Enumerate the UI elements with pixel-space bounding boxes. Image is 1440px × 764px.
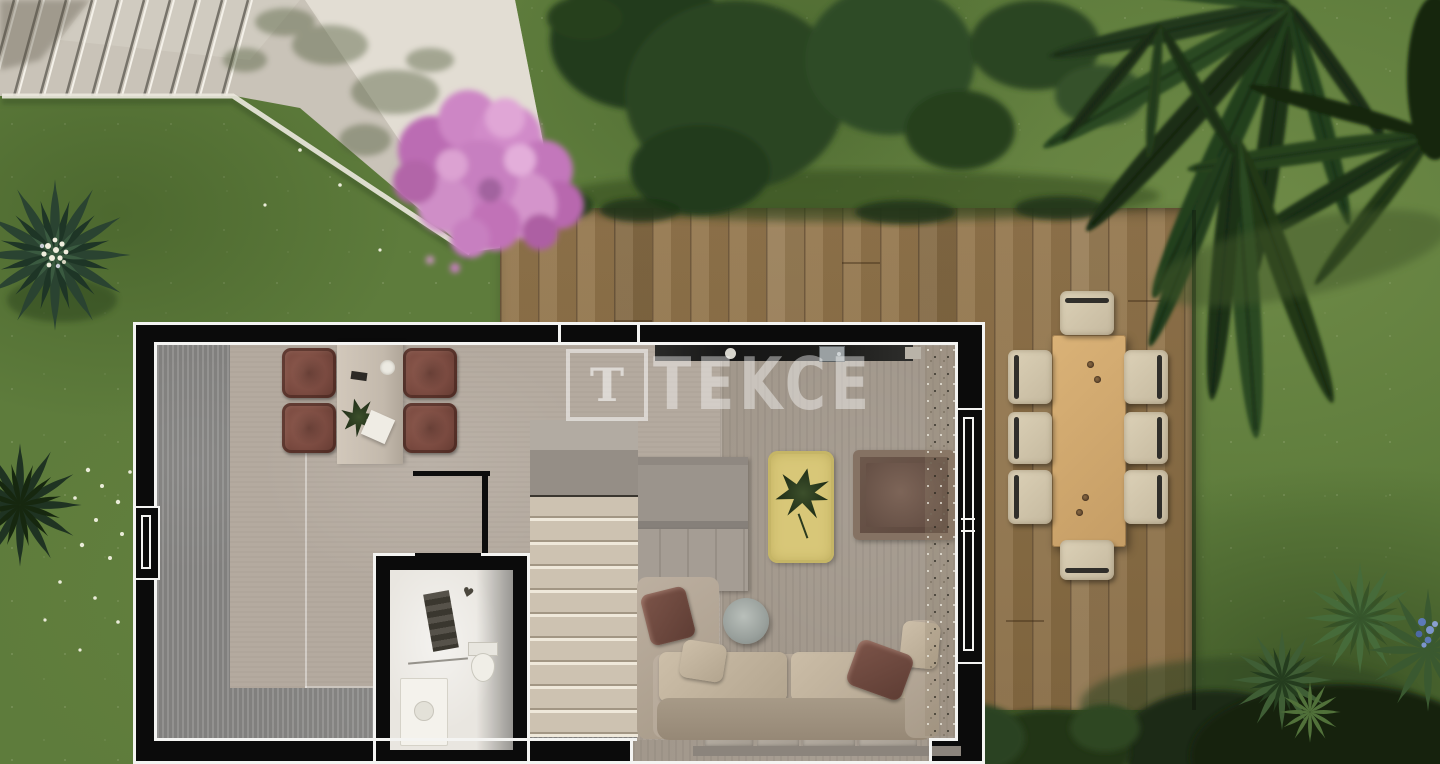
floor-plan: ♥ [133, 322, 985, 764]
table-knob [1087, 361, 1094, 368]
dining-chair [1008, 470, 1052, 524]
dining-chair [1124, 412, 1168, 464]
tekce-logo-letter: T [590, 358, 624, 412]
table-knob [1076, 509, 1083, 516]
tekce-logo-icon: T [566, 349, 648, 421]
table-knob [1094, 376, 1101, 383]
dining-chair [1124, 350, 1168, 404]
left-palm-small [0, 443, 82, 566]
dining-chair [1124, 470, 1168, 524]
dining-chair [1060, 291, 1114, 335]
left-palm-large [0, 179, 131, 330]
bottom-right-planting [925, 562, 1440, 764]
pink-blossom-tree [393, 90, 584, 273]
deck-edge-shadow [1192, 210, 1196, 710]
dining-chair [1008, 350, 1052, 404]
dining-chair [1008, 412, 1052, 464]
outdoor-dining-table [1052, 335, 1126, 547]
tekce-watermark: TEKCE [653, 346, 936, 422]
table-knob [1082, 494, 1089, 501]
tekce-brand-text: TEKCE [653, 342, 874, 426]
scene-root: ♥ [0, 0, 1440, 764]
outdoor-dining-set [1000, 285, 1180, 585]
dining-chair [1060, 540, 1114, 580]
